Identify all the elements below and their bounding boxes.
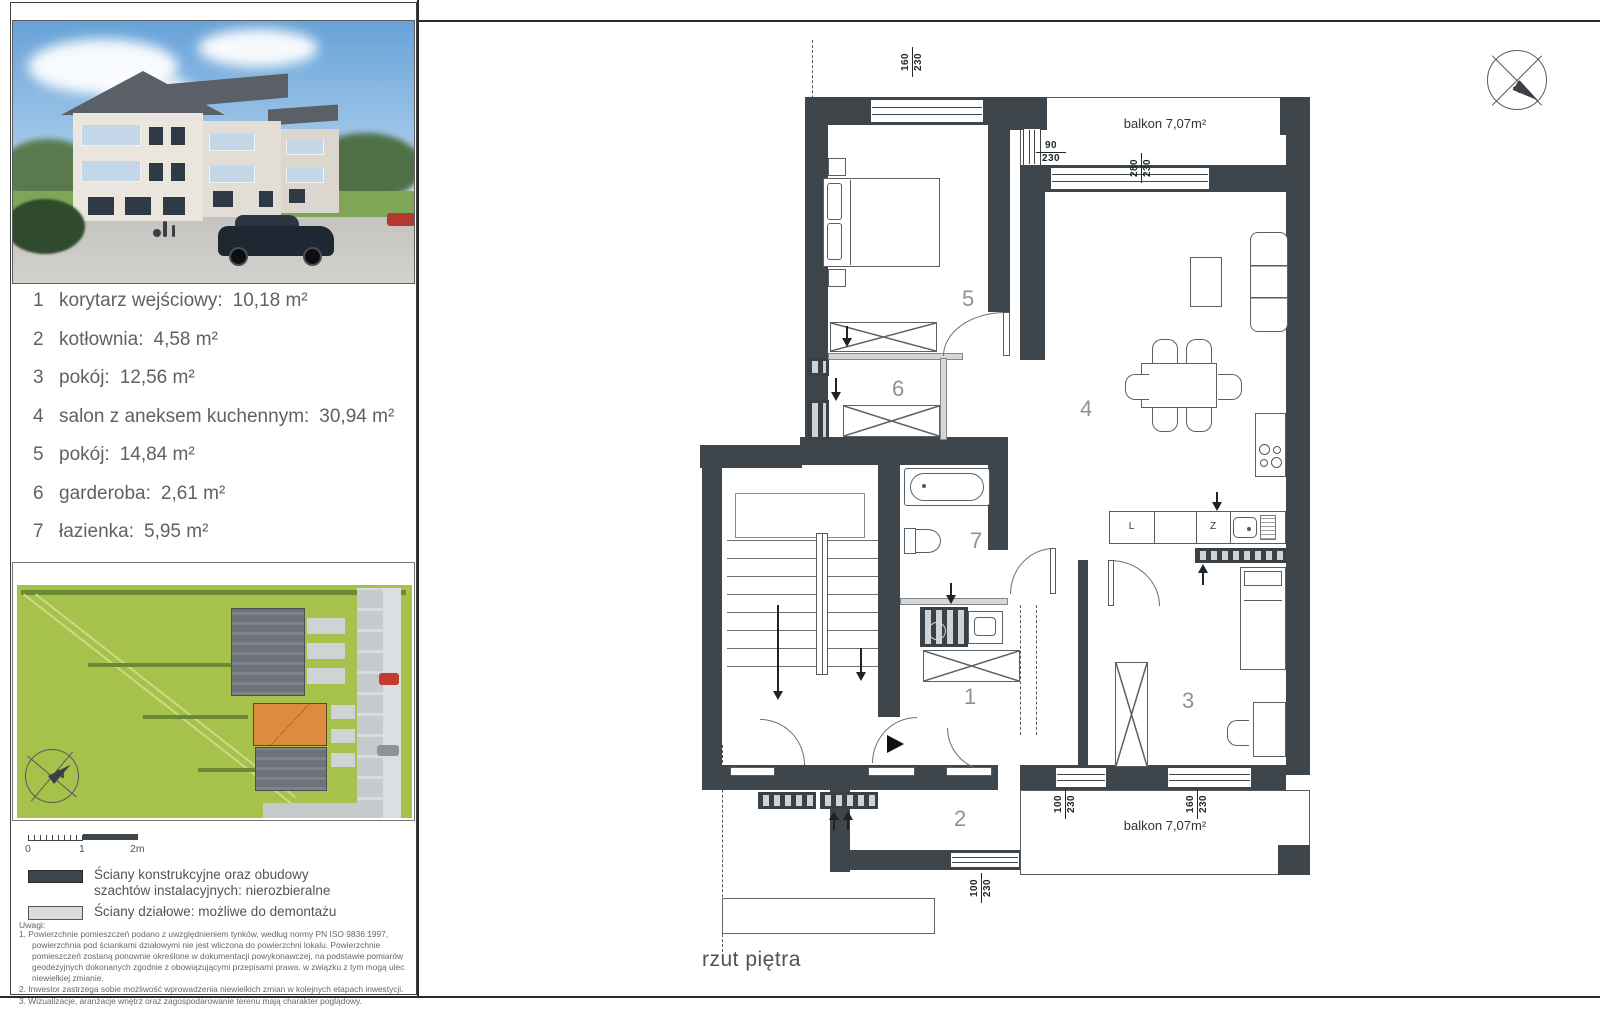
dashed-line xyxy=(1020,605,1021,735)
panel-divider-line xyxy=(417,0,419,997)
site-building-highlighted xyxy=(253,703,327,746)
chair xyxy=(1227,720,1249,746)
stair-landing xyxy=(735,493,865,538)
chair xyxy=(1186,339,1212,363)
window xyxy=(950,852,1020,868)
bed-line xyxy=(850,180,851,265)
chair xyxy=(1125,374,1149,400)
window xyxy=(289,189,305,203)
wall xyxy=(702,765,722,790)
site-building-gray xyxy=(231,608,305,696)
door-arc xyxy=(760,719,805,765)
coffee-table xyxy=(1190,257,1222,307)
wall xyxy=(1020,165,1045,360)
room-label-6: 6 xyxy=(892,376,904,402)
gray-car xyxy=(377,745,399,756)
room-number: 6 xyxy=(33,483,59,505)
stair-direction-arrow xyxy=(860,648,862,678)
dimension-label: 280230 xyxy=(1129,153,1153,183)
room-area: 12,56 m² xyxy=(120,367,195,389)
room-list: 1korytarz wejściowy:10,18 m² 2kotłownia:… xyxy=(11,290,416,560)
legend-text: Ściany konstrukcyjne oraz obudowy szacht… xyxy=(94,867,330,899)
wall xyxy=(988,465,1008,550)
room-number: 3 xyxy=(33,367,59,389)
chair xyxy=(1152,408,1178,432)
window xyxy=(1167,767,1252,788)
room-name: korytarz wejściowy: xyxy=(59,290,223,312)
lower-level-outline xyxy=(722,898,935,934)
door-leaf xyxy=(868,767,915,776)
pillow xyxy=(1244,571,1282,586)
chair xyxy=(1152,339,1178,363)
wall-legend: Ściany konstrukcyjne oraz obudowy szacht… xyxy=(28,867,408,925)
window xyxy=(213,191,233,207)
door-leaf xyxy=(1050,548,1056,594)
legend-text: Ściany działowe: możliwe do demontażu xyxy=(94,904,336,920)
stair-stringer xyxy=(816,533,828,675)
stroller xyxy=(153,229,161,237)
sink-drainer xyxy=(1260,515,1276,540)
desk xyxy=(1253,702,1286,757)
balcony xyxy=(81,161,141,182)
cabinet-icon xyxy=(923,650,1020,682)
room-label-2: 2 xyxy=(954,806,966,832)
window xyxy=(149,127,163,145)
stairs xyxy=(727,540,878,668)
chair xyxy=(1186,408,1212,432)
wall xyxy=(805,97,828,445)
window xyxy=(1055,767,1107,788)
nightstand xyxy=(828,158,846,176)
counter-divider xyxy=(1230,511,1231,544)
door-arc xyxy=(943,312,1005,356)
room-area: 30,94 m² xyxy=(319,406,394,428)
wall xyxy=(988,122,1010,312)
washer-drum xyxy=(928,622,946,640)
red-car xyxy=(379,673,399,685)
room-list-item: 1korytarz wejściowy:10,18 m² xyxy=(11,290,416,329)
note-item: 3. Wizualizacje, aranżacje wnętrz oraz z… xyxy=(19,996,411,1007)
bathtub-inner xyxy=(910,473,984,501)
site-hedge xyxy=(88,663,248,667)
site-building-gray xyxy=(255,747,327,791)
burner xyxy=(1260,459,1268,467)
note-item: 1. Powierzchnie pomieszczeń podano z uwz… xyxy=(19,929,411,984)
fridge-label: L xyxy=(1109,521,1154,532)
dining-table xyxy=(1141,363,1217,408)
door-arc xyxy=(1110,560,1160,606)
window xyxy=(125,197,151,215)
scale-label-1: 1 xyxy=(79,843,85,855)
kitchen-sink xyxy=(1233,517,1257,538)
partition-wall xyxy=(940,358,947,440)
room-label-4: 4 xyxy=(1080,396,1092,422)
burner xyxy=(1259,444,1270,455)
room-area: 10,18 m² xyxy=(233,290,308,312)
balcony xyxy=(209,133,255,151)
balcony-top-label: balkon 7,07m² xyxy=(1020,116,1310,131)
room-name: kotłownia: xyxy=(59,329,144,351)
burner xyxy=(1273,446,1281,454)
direction-arrow xyxy=(833,814,835,830)
radiator xyxy=(1195,548,1286,563)
wall xyxy=(702,445,722,765)
site-hedge xyxy=(143,715,248,719)
pillow xyxy=(827,183,842,220)
balcony xyxy=(286,167,324,183)
info-panel: 1korytarz wejściowy:10,18 m² 2kotłownia:… xyxy=(10,2,417,995)
installation-shaft xyxy=(807,400,829,440)
site-plan: N xyxy=(12,562,415,821)
floor-plan: balkon 7,07m² balkon 7,07m² xyxy=(700,40,1320,980)
room-list-item: 3pokój:12,56 m² xyxy=(11,367,416,406)
drain xyxy=(922,484,926,488)
parking-pad xyxy=(307,668,345,684)
room-list-item: 2kotłownia:4,58 m² xyxy=(11,329,416,368)
dimension-label: 160230 xyxy=(1185,789,1209,819)
room-number: 7 xyxy=(33,521,59,543)
person xyxy=(163,221,167,237)
room-list-item: 4salon z aneksem kuchennym:30,94 m² xyxy=(11,406,416,445)
dimension-label: 90230 xyxy=(1036,140,1066,164)
direction-arrow xyxy=(1202,567,1204,585)
room-name: garderoba: xyxy=(59,483,151,505)
direction-arrow xyxy=(846,326,848,344)
balcony xyxy=(81,125,141,146)
window xyxy=(259,191,273,207)
balcony-bottom-label: balkon 7,07m² xyxy=(1020,818,1310,833)
door-arc xyxy=(1010,548,1054,594)
scale-label-0: 0 xyxy=(25,843,31,855)
radiator xyxy=(758,792,816,809)
balcony xyxy=(209,165,255,183)
red-car xyxy=(387,213,415,226)
scale-label-2m: 2m xyxy=(130,843,145,855)
room-area: 5,95 m² xyxy=(144,521,208,543)
floor-plan-sheet: 1korytarz wejściowy:10,18 m² 2kotłownia:… xyxy=(0,0,1600,1023)
room-list-item: 6garderoba:2,61 m² xyxy=(11,483,416,522)
faucet xyxy=(1247,527,1251,531)
plan-caption: rzut piętra xyxy=(702,948,801,972)
window xyxy=(870,99,984,123)
wall xyxy=(1280,97,1310,135)
scale-ruler-ticks xyxy=(28,835,83,841)
scale-bar: 0 1 2m xyxy=(28,827,208,859)
parking-pad xyxy=(331,729,355,743)
balcony xyxy=(286,139,324,155)
site-road xyxy=(357,588,383,818)
direction-arrow xyxy=(1216,492,1218,508)
door-leaf xyxy=(1003,312,1010,356)
room-label-1: 1 xyxy=(964,684,976,710)
site-hedge xyxy=(198,768,258,772)
window xyxy=(171,163,185,181)
building-photo xyxy=(12,20,415,284)
room-area: 4,58 m² xyxy=(154,329,218,351)
window xyxy=(149,163,163,181)
window xyxy=(171,127,185,145)
room-list-item: 7łazienka:5,95 m² xyxy=(11,521,416,560)
wardrobe-icon xyxy=(843,405,940,437)
counter-divider xyxy=(1154,511,1155,544)
legend-item-partition: Ściany działowe: możliwe do demontażu xyxy=(28,904,408,920)
room-number: 2 xyxy=(33,329,59,351)
wall xyxy=(800,437,1008,465)
room-label-5: 5 xyxy=(962,286,974,312)
stair-direction-arrow xyxy=(777,605,779,697)
parking-pad xyxy=(307,643,345,659)
pillow xyxy=(827,223,842,260)
note-item: 2. Inwestor zastrzega sobie możliwość wp… xyxy=(19,984,411,995)
compass-north-label: N xyxy=(56,767,65,781)
top-border-line xyxy=(417,20,1600,22)
sofa xyxy=(1250,232,1288,332)
door-leaf xyxy=(730,767,775,776)
car-wheel xyxy=(303,247,322,266)
room-list-item: 5pokój:14,84 m² xyxy=(11,444,416,483)
chair xyxy=(1218,374,1242,400)
room-name: pokój: xyxy=(59,367,110,389)
dimension-label: 160230 xyxy=(900,47,924,77)
room-area: 14,84 m² xyxy=(120,444,195,466)
room-label-7: 7 xyxy=(970,528,982,554)
wall xyxy=(878,465,900,717)
room-number: 4 xyxy=(33,406,59,428)
wall xyxy=(1286,135,1310,775)
wall xyxy=(1078,560,1088,765)
structural-wall-swatch xyxy=(28,870,83,883)
person xyxy=(172,225,175,237)
scale-ruler-bar xyxy=(83,834,138,840)
parking-pad xyxy=(331,705,355,719)
dimension-label: 100230 xyxy=(1053,789,1077,819)
room-name: salon z aneksem kuchennym: xyxy=(59,406,309,428)
sink-cabinet-label: Z xyxy=(1196,521,1230,532)
car-wheel xyxy=(229,247,248,266)
room-area: 2,61 m² xyxy=(161,483,225,505)
site-hedge xyxy=(21,590,406,595)
door-leaf xyxy=(946,767,992,776)
parking-pad xyxy=(331,753,355,767)
site-compass-icon: N xyxy=(25,749,79,803)
window xyxy=(88,197,114,215)
site-road-shoulder xyxy=(383,588,401,818)
wardrobe-icon xyxy=(1115,662,1148,767)
legend-item-structural: Ściany konstrukcyjne oraz obudowy szacht… xyxy=(28,867,408,899)
partition-wall-swatch xyxy=(28,906,83,920)
room-name: pokój: xyxy=(59,444,110,466)
direction-arrow xyxy=(847,814,849,830)
dimension-label: 100230 xyxy=(969,873,993,903)
nightstand xyxy=(828,269,846,287)
bed-line xyxy=(1244,600,1282,601)
room-number: 5 xyxy=(33,444,59,466)
direction-arrow xyxy=(835,378,837,398)
parking-pad xyxy=(307,618,345,634)
door-leaf xyxy=(1108,560,1114,606)
installation-shaft xyxy=(807,358,829,376)
entrance-marker-icon xyxy=(887,735,904,753)
burner xyxy=(1271,457,1282,468)
toilet xyxy=(915,529,941,553)
direction-arrow xyxy=(950,583,952,601)
wall xyxy=(1278,845,1310,875)
north-arrow-icon: N xyxy=(1487,50,1547,110)
room-number: 1 xyxy=(33,290,59,312)
dashed-line xyxy=(1036,605,1037,735)
room-label-3: 3 xyxy=(1182,688,1194,714)
site-road xyxy=(263,803,383,818)
cloud xyxy=(198,29,318,67)
notes: 1. Powierzchnie pomieszczeń podano z uwz… xyxy=(19,929,411,1007)
door xyxy=(163,197,185,215)
room-name: łazienka: xyxy=(59,521,134,543)
sink-bowl xyxy=(974,617,996,636)
